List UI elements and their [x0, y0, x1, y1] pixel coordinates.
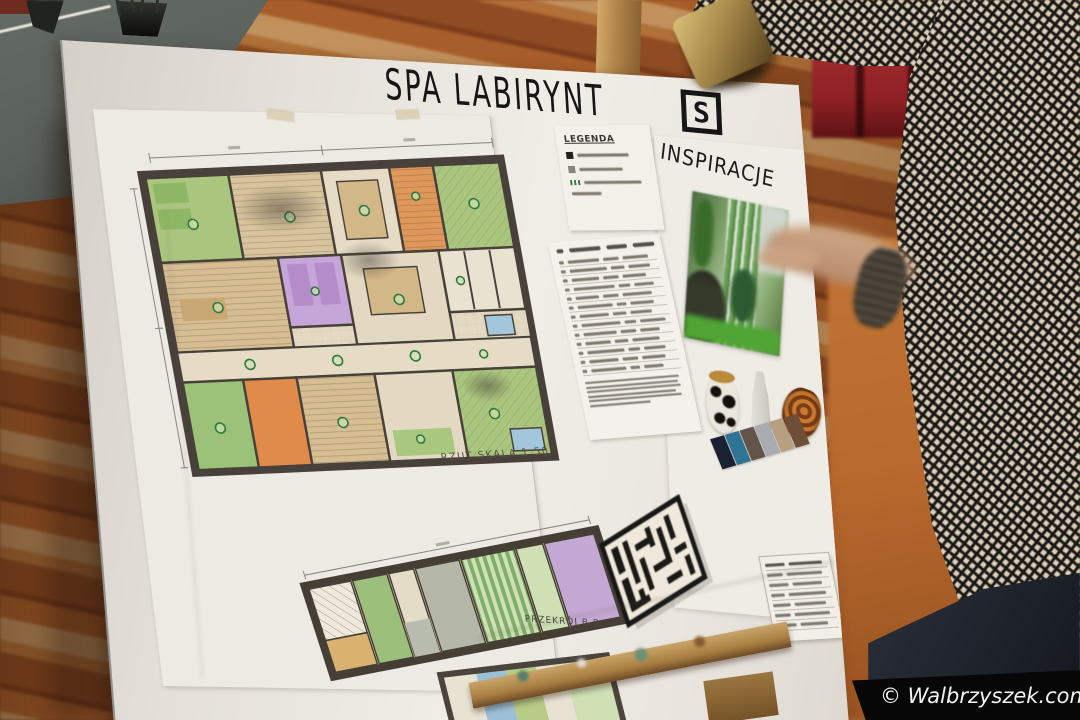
legend-item: [572, 192, 652, 196]
watermark-text: © Walbrzyszek.com: [880, 684, 1080, 708]
photo-scene: SPA LABIRYNT: [0, 0, 1080, 720]
inspiration-photo: [684, 191, 789, 357]
table-footnote: [585, 374, 688, 407]
presentation-board: SPA LABIRYNT: [60, 40, 853, 720]
legend-marker-icon: [568, 166, 576, 173]
legend-marker-icon: [570, 180, 581, 185]
legend-item: [568, 165, 648, 173]
logo-s: S: [680, 89, 722, 135]
binder-clip-handle-icon: [140, 0, 160, 13]
tape: [395, 109, 420, 120]
legend-marker-icon: [566, 152, 574, 159]
axonometric-drawing: [578, 468, 723, 649]
easel-knob: [703, 671, 778, 720]
legend-item: [566, 151, 646, 159]
legend-card: LEGENDA: [554, 125, 665, 231]
logo-letter: S: [692, 95, 710, 130]
legend-item: [570, 179, 650, 185]
patterned-vase-photo: [706, 373, 740, 435]
pointing-hand: [758, 244, 820, 270]
legend-title: LEGENDA: [563, 134, 644, 145]
